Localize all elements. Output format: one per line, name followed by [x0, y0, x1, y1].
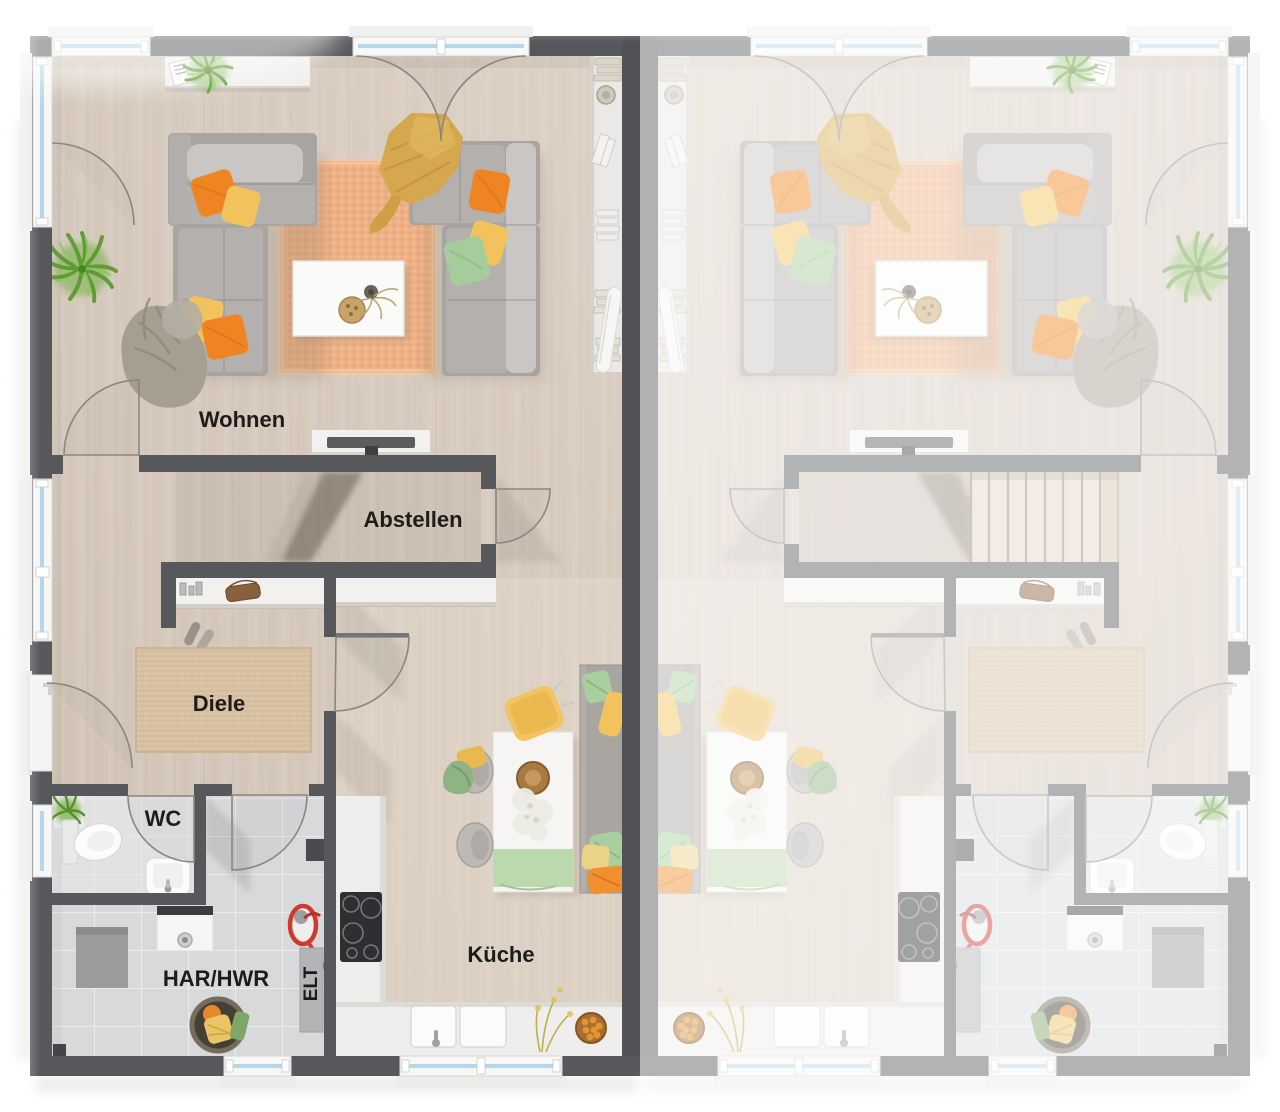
svg-text:HAR/HWR: HAR/HWR: [163, 966, 269, 991]
svg-text:Abstellen: Abstellen: [363, 507, 462, 532]
svg-text:Diele: Diele: [193, 691, 246, 716]
svg-text:Küche: Küche: [467, 942, 534, 967]
svg-text:ELT: ELT: [301, 966, 322, 1001]
svg-text:WC: WC: [145, 806, 182, 831]
svg-text:Wohnen: Wohnen: [199, 407, 285, 432]
